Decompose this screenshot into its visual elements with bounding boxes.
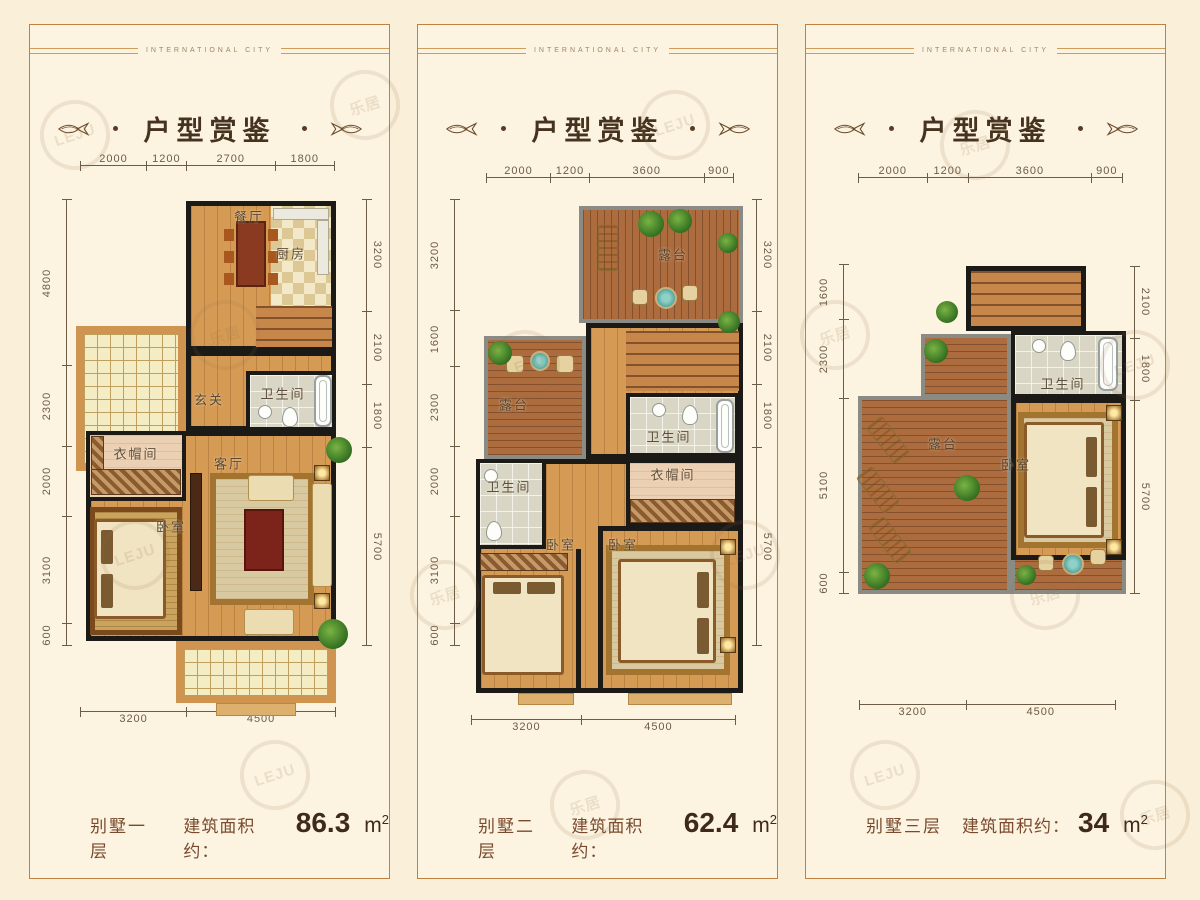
panel-floor-3: INTERNATIONAL CITY 户型赏鉴 200012003600900 … — [805, 24, 1166, 879]
chair — [1090, 549, 1106, 565]
lamp — [720, 539, 736, 555]
room-label-cloak: 衣帽间 — [113, 444, 158, 463]
room-label-bath: 卫生间 — [646, 427, 691, 446]
fish-ornament-icon — [323, 121, 363, 137]
ruler-bottom: 32004500 — [471, 719, 736, 720]
chair — [632, 289, 648, 305]
tv-cabinet — [190, 473, 202, 591]
dot-icon — [889, 126, 894, 131]
wardrobe — [91, 469, 181, 495]
lamp — [1106, 539, 1122, 555]
step — [518, 693, 574, 705]
intl-city-label: INTERNATIONAL CITY — [526, 47, 669, 54]
room-label-bedroom: 卧室 — [546, 535, 576, 554]
interior-wall — [576, 549, 581, 693]
room-label-bath: 卫生间 — [486, 477, 531, 496]
intl-header: INTERNATIONAL CITY — [30, 47, 389, 54]
kitchen-counter — [317, 220, 329, 275]
ruler-left: 160023005100600 — [843, 264, 844, 594]
plant — [936, 301, 958, 323]
plant — [638, 211, 664, 237]
step — [628, 693, 732, 705]
bed — [482, 575, 564, 675]
fish-ornament-icon — [445, 121, 485, 137]
divider-line — [30, 48, 138, 54]
room-label-bath: 卫生间 — [1040, 374, 1085, 393]
dining-chairs — [224, 225, 234, 285]
floor-name: 别墅三层 — [866, 812, 942, 837]
area-value: 34 — [1078, 807, 1109, 839]
dot-icon — [501, 126, 506, 131]
area-unit: m2 — [364, 812, 389, 838]
area-value: 86.3 — [296, 807, 351, 839]
bed — [1024, 422, 1104, 538]
room-label-terrace: 露台 — [658, 245, 688, 264]
plant — [1016, 565, 1036, 585]
lamp — [1106, 405, 1122, 421]
ruler-left: 4800230020003100600 — [66, 199, 67, 646]
panel-title: 户型赏鉴 — [532, 109, 664, 148]
plant — [488, 341, 512, 365]
area-label: 建筑面积约： — [962, 812, 1070, 837]
intl-header: INTERNATIONAL CITY — [806, 47, 1165, 54]
bed — [618, 559, 716, 663]
intl-city-label: INTERNATIONAL CITY — [914, 47, 1057, 54]
plant — [718, 233, 738, 253]
bathtub — [716, 399, 734, 453]
plant — [864, 563, 890, 589]
stairs — [626, 331, 739, 391]
area-value: 62.4 — [684, 807, 739, 839]
ruler-right: 3200210018005700 — [366, 199, 367, 646]
dot-icon — [113, 126, 118, 131]
stairs — [966, 266, 1086, 331]
room-label-bedroom: 卧室 — [1001, 455, 1031, 474]
sink — [652, 403, 666, 417]
panel-floor-2: INTERNATIONAL CITY 户型赏鉴 200012003600900 … — [417, 24, 778, 879]
floorplan-flyer: { "watermark": { "logo": "LEJU", "cn": "… — [0, 0, 1200, 900]
plant — [318, 619, 348, 649]
ruler-top: 200012003600900 — [858, 177, 1123, 178]
dining-table — [236, 221, 266, 287]
floor-name: 别墅二层 — [478, 812, 551, 862]
room-label-terrace: 露台 — [499, 395, 529, 414]
divider-line — [806, 48, 914, 54]
balcony-step — [216, 703, 296, 716]
lamp — [720, 637, 736, 653]
intl-city-label: INTERNATIONAL CITY — [138, 47, 281, 54]
panel-title: 户型赏鉴 — [144, 109, 276, 148]
area-label: 建筑面积约： — [571, 812, 675, 862]
room-label-cloak: 衣帽间 — [650, 465, 695, 484]
wardrobe — [480, 553, 568, 571]
area-label: 建筑面积约： — [183, 812, 287, 862]
toilet — [486, 521, 502, 541]
floor-lamp — [314, 465, 330, 481]
floor-name: 别墅一层 — [90, 812, 163, 862]
room-label-living: 客厅 — [214, 454, 244, 473]
divider-line — [1057, 48, 1165, 54]
divider-line — [281, 48, 389, 54]
area-caption: 别墅一层 建筑面积约： 86.3 m2 — [90, 807, 389, 862]
toilet — [682, 405, 698, 425]
area-caption: 别墅二层 建筑面积约： 62.4 m2 — [478, 807, 777, 862]
plant — [718, 311, 740, 333]
round-table — [1062, 553, 1084, 575]
room-label-terrace: 露台 — [928, 434, 958, 453]
divider-line — [418, 48, 526, 54]
panel-title-row: 户型赏鉴 — [30, 109, 389, 148]
plant — [326, 437, 352, 463]
dot-icon — [302, 126, 307, 131]
chair — [682, 285, 698, 301]
area-caption: 别墅三层 建筑面积约： 34 m2 — [866, 807, 1148, 839]
sink — [1032, 339, 1046, 353]
stairs — [256, 306, 332, 347]
sofa — [312, 483, 332, 587]
wardrobe — [630, 499, 735, 523]
chair — [1038, 555, 1054, 571]
toilet — [282, 407, 298, 427]
ruler-right: 210018005700 — [1134, 266, 1135, 594]
room-label-bath: 卫生间 — [260, 384, 305, 403]
ruler-top: 2000120027001800 — [80, 165, 335, 166]
plant — [668, 209, 692, 233]
chair — [556, 355, 574, 373]
panel-title: 户型赏鉴 — [920, 109, 1052, 148]
fish-ornament-icon — [1099, 121, 1139, 137]
ruler-top: 200012003600900 — [486, 177, 734, 178]
room-label-bedroom: 卧室 — [156, 517, 186, 536]
living-center-rug — [244, 509, 284, 571]
room-label-bedroom: 卧室 — [608, 535, 638, 554]
panel-title-row: 户型赏鉴 — [418, 109, 777, 148]
interior-wall — [598, 526, 743, 531]
fish-ornament-icon — [711, 121, 751, 137]
sofa — [248, 475, 294, 501]
ruler-left: 32001600230020003100600 — [454, 199, 455, 646]
round-table — [530, 351, 550, 371]
room-label-foyer: 玄关 — [194, 390, 224, 409]
ruler-bottom: 32004500 — [859, 704, 1116, 705]
ruler-right: 3200210018005700 — [756, 199, 757, 646]
plant — [954, 475, 980, 501]
floor-lamp — [314, 593, 330, 609]
bathtub — [314, 375, 332, 427]
dot-icon — [1078, 126, 1083, 131]
divider-line — [669, 48, 777, 54]
ruler-bottom: 32004500 — [80, 711, 336, 712]
sofa — [244, 609, 294, 635]
bathtub — [1098, 337, 1118, 391]
balcony-tiled — [176, 641, 336, 703]
panel-floor-1: INTERNATIONAL CITY 户型赏鉴 2000120027001800… — [29, 24, 390, 879]
lounge-chair — [598, 225, 618, 271]
panel-title-row: 户型赏鉴 — [806, 109, 1165, 148]
area-unit: m2 — [1123, 812, 1148, 838]
area-unit: m2 — [752, 812, 777, 838]
fish-ornament-icon — [833, 121, 873, 137]
sink — [258, 405, 272, 419]
interior-wall — [598, 526, 603, 693]
intl-header: INTERNATIONAL CITY — [418, 47, 777, 54]
plant — [924, 339, 948, 363]
room-label-kitchen: 厨房 — [276, 244, 306, 263]
kitchen-counter — [273, 208, 329, 220]
room-label-dining: 餐厅 — [234, 207, 264, 226]
round-table — [655, 287, 677, 309]
fish-ornament-icon — [57, 121, 97, 137]
dot-icon — [690, 126, 695, 131]
toilet — [1060, 341, 1076, 361]
